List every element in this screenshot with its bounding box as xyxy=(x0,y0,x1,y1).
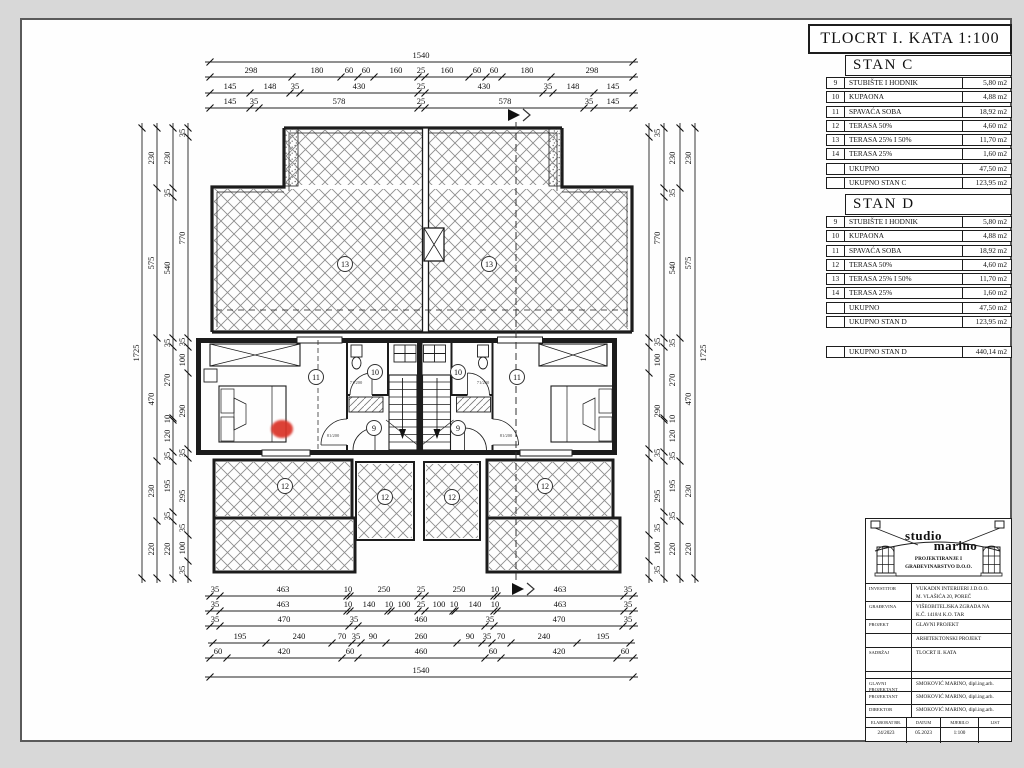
section-marker-icon xyxy=(527,583,534,595)
area-cell: 4,88 m2 xyxy=(963,231,1011,241)
dim-label: 35 xyxy=(624,584,633,594)
title-block-label: INVESTITOR xyxy=(866,584,912,601)
dim-label: 148 xyxy=(264,81,277,91)
dim-label: 25 xyxy=(417,584,426,594)
title-block-row: PROJEKTANTSMOKOVIĆ MARINO, dipl.ing.arh. xyxy=(866,692,1011,705)
stan-d-title: STAN D xyxy=(853,196,915,213)
area-cell: 5,80 m2 xyxy=(963,217,1011,227)
area-cell: KUPAONA xyxy=(845,231,963,241)
dim-label: 1540 xyxy=(413,50,430,60)
dim-label: 35 xyxy=(162,189,172,198)
wall-stipple xyxy=(285,129,298,186)
room-number: 9 xyxy=(372,424,376,433)
dim-label: 10 xyxy=(344,584,353,594)
dim-label: 35 xyxy=(211,614,220,624)
dim-label: 35 xyxy=(624,614,633,624)
sink xyxy=(394,345,416,362)
area-cell: UKUPNO STAN D xyxy=(845,317,963,327)
area-table-row: 13TERASA 25% I 50%11,70 m2 xyxy=(826,134,1012,146)
door-size-label: 71/200 xyxy=(350,380,363,385)
dim-label: 35 xyxy=(352,631,361,641)
dim-label: 35 xyxy=(483,631,492,641)
dim-label: 35 xyxy=(162,339,172,348)
dim-label: 60 xyxy=(473,65,482,75)
title-block-value: SMOKOVIĆ MARINO, dipl.ing.arh. xyxy=(912,705,1011,717)
area-cell: 18,92 m2 xyxy=(963,107,1011,117)
section-marker-icon xyxy=(508,109,520,121)
area-cell: 10 xyxy=(827,231,845,241)
footer-label: DATUM xyxy=(907,718,940,728)
title-block-footer-cell: MJERILO1:100 xyxy=(941,718,979,743)
dim-label: 240 xyxy=(538,631,551,641)
area-cell: TERASA 25% I 50% xyxy=(845,274,963,284)
area-cell xyxy=(827,164,845,174)
dim-label: 195 xyxy=(234,631,247,641)
dim-label: 100 xyxy=(177,354,187,367)
title-block-value xyxy=(912,672,1011,678)
dim-label: 35 xyxy=(652,449,662,458)
dim-label: 145 xyxy=(224,96,237,106)
dim-label: 35 xyxy=(652,129,662,138)
footer-value xyxy=(979,728,1011,730)
area-cell xyxy=(827,317,845,327)
title-block-value: SMOKOVIĆ MARINO, dipl.ing.arh. xyxy=(912,692,1011,704)
dim-label: 430 xyxy=(353,81,366,91)
room-number: 12 xyxy=(541,482,549,491)
dim-label: 100 xyxy=(652,354,662,367)
area-table-row: 12TERASA 50%4,60 m2 xyxy=(826,120,1012,132)
dim-label: 230 xyxy=(146,152,156,165)
drawing-title-text: TLOCRT I. KATA 1:100 xyxy=(820,30,999,48)
staircase-right xyxy=(420,375,454,450)
area-cell xyxy=(827,178,845,188)
staircase-left xyxy=(386,375,420,450)
toilet xyxy=(351,345,362,357)
room-number: 9 xyxy=(456,424,460,433)
area-table-row: UKUPNO STAN C123,95 m2 xyxy=(826,177,1012,189)
upper-terrace xyxy=(212,128,632,332)
title-block-label xyxy=(866,634,912,647)
area-cell: 4,88 m2 xyxy=(963,92,1011,102)
area-table-row: 14TERASA 25%1,60 m2 xyxy=(826,148,1012,160)
door-size-label: 71/200 xyxy=(477,380,490,385)
dim-label: 60 xyxy=(346,646,355,656)
dim-label: 90 xyxy=(466,631,475,641)
dim-label: 35 xyxy=(162,512,172,521)
dim-label: 60 xyxy=(362,65,371,75)
red-position-marker xyxy=(271,420,293,438)
sink xyxy=(424,345,446,362)
dim-label: 60 xyxy=(621,646,630,656)
door-size-label: 81/200 xyxy=(500,433,513,438)
title-block-label: SADRŽAJ xyxy=(866,648,912,671)
dim-label: 60 xyxy=(345,65,354,75)
area-table-row: UKUPNO47,50 m2 xyxy=(826,163,1012,175)
dim-label: 25 xyxy=(417,96,426,106)
dim-label: 290 xyxy=(652,405,662,418)
dim-label: 260 xyxy=(415,631,428,641)
toilet xyxy=(478,345,489,357)
dim-label: 230 xyxy=(683,152,693,165)
dim-label: 35 xyxy=(177,338,187,347)
toilet xyxy=(352,357,361,369)
dim-label: 463 xyxy=(277,584,290,594)
dim-label: 195 xyxy=(162,480,172,493)
building-total-table: UKUPNO STAN D440,14 m2 xyxy=(826,346,1012,360)
dim-label: 470 xyxy=(683,393,693,406)
dim-label: 230 xyxy=(162,152,172,165)
area-cell: 13 xyxy=(827,135,845,145)
footer-label: ELABORAT BR. xyxy=(866,718,906,728)
area-cell: TERASA 25% xyxy=(845,288,963,298)
dim-label: 10 xyxy=(491,584,500,594)
dim-label: 270 xyxy=(667,374,677,387)
dim-label: 35 xyxy=(667,452,677,461)
title-block-label: GLAVNI PROJEKTANT xyxy=(866,679,912,691)
apartment-strip xyxy=(196,337,617,456)
area-cell: 14 xyxy=(827,149,845,159)
dim-label: 250 xyxy=(453,584,466,594)
area-cell: 9 xyxy=(827,217,845,227)
dim-label: 35 xyxy=(211,584,220,594)
area-cell: 5,80 m2 xyxy=(963,78,1011,88)
dim-label: 35 xyxy=(585,96,594,106)
dim-label: 470 xyxy=(278,614,291,624)
area-table-row: UKUPNO STAN D123,95 m2 xyxy=(826,316,1012,328)
area-cell: 18,92 m2 xyxy=(963,246,1011,256)
dim-label: 220 xyxy=(683,543,693,556)
title-block-value: TLOCRT II. KATA xyxy=(912,648,1011,671)
dim-label: 35 xyxy=(486,614,495,624)
title-block-row: SADRŽAJTLOCRT II. KATA xyxy=(866,648,1011,672)
room-number: 13 xyxy=(341,260,349,269)
dim-label: 230 xyxy=(683,485,693,498)
dim-label: 1725 xyxy=(698,345,708,362)
logo-subtitle: PROJEKTIRANJE I GRAĐEVINARSTVO D.O.O. xyxy=(866,556,1011,572)
area-cell xyxy=(827,303,845,313)
page: 1540298180606016025160606018029814514835… xyxy=(0,0,1024,768)
section-marker-icon xyxy=(523,109,530,121)
area-cell: 9 xyxy=(827,78,845,88)
area-cell: TERASA 25% xyxy=(845,149,963,159)
nightstand xyxy=(204,369,217,382)
lower-terraces xyxy=(214,460,620,572)
area-cell: 11 xyxy=(827,107,845,117)
area-cell: 123,95 m2 xyxy=(963,317,1011,327)
stan-c-title: STAN C xyxy=(853,57,914,74)
dim-label: 770 xyxy=(177,232,187,245)
dim-label: 35 xyxy=(250,96,259,106)
dim-label: 35 xyxy=(162,452,172,461)
section-marker-icon xyxy=(512,583,524,595)
dim-label: 35 xyxy=(544,81,553,91)
stan-c-area-table: 9STUBIŠTE I HODNIK5,80 m210KUPAONA4,88 m… xyxy=(826,77,1012,191)
dim-label: 60 xyxy=(489,646,498,656)
room-number: 11 xyxy=(312,373,320,382)
area-cell: 11,70 m2 xyxy=(963,135,1011,145)
area-cell: 1,60 m2 xyxy=(963,149,1011,159)
dim-label: 460 xyxy=(415,646,428,656)
title-block-row: PROJEKTGLAVNI PROJEKT xyxy=(866,620,1011,634)
dim-label: 100 xyxy=(433,599,446,609)
dim-label: 145 xyxy=(607,96,620,106)
dim-label: 298 xyxy=(245,65,258,75)
dim-label: 35 xyxy=(667,339,677,348)
title-block-value: VUKADIN INTERIJERI J.D.O.O.M. VLAŠIĆA 20… xyxy=(912,584,1011,601)
bedroom-door xyxy=(321,419,347,445)
dim-label: 10 xyxy=(667,415,677,424)
dim-label: 180 xyxy=(521,65,534,75)
area-cell: UKUPNO STAN C xyxy=(845,178,963,188)
area-cell: TERASA 50% xyxy=(845,260,963,270)
area-table-row: 9STUBIŠTE I HODNIK5,80 m2 xyxy=(826,77,1012,89)
dim-label: 420 xyxy=(553,646,566,656)
dim-label: 25 xyxy=(417,599,426,609)
door-size-label: 81/200 xyxy=(327,433,340,438)
dim-label: 148 xyxy=(567,81,580,91)
pillow xyxy=(599,417,612,441)
title-block-row: ARHITEKTONSKI PROJEKT xyxy=(866,634,1011,648)
dim-label: 195 xyxy=(597,631,610,641)
dim-label: 420 xyxy=(278,646,291,656)
area-table-row: UKUPNO STAN D440,14 m2 xyxy=(826,346,1012,358)
title-block-row xyxy=(866,672,1011,679)
pillow xyxy=(221,389,234,413)
dim-label: 35 xyxy=(177,524,187,533)
dim-label: 25 xyxy=(417,81,426,91)
dim-label: 35 xyxy=(177,566,187,575)
dim-label: 10 xyxy=(162,415,172,424)
dim-label: 540 xyxy=(667,262,677,275)
dim-label: 195 xyxy=(667,480,677,493)
dim-label: 250 xyxy=(378,584,391,594)
dim-label: 100 xyxy=(398,599,411,609)
area-cell: 440,14 m2 xyxy=(963,347,1011,357)
area-cell: 4,60 m2 xyxy=(963,260,1011,270)
room-number: 12 xyxy=(381,493,389,502)
dim-label: 140 xyxy=(469,599,482,609)
dim-label: 160 xyxy=(441,65,454,75)
area-cell: 11,70 m2 xyxy=(963,274,1011,284)
dim-label: 60 xyxy=(214,646,223,656)
area-table-row: UKUPNO47,50 m2 xyxy=(826,302,1012,314)
title-block-row: GLAVNI PROJEKTANTSMOKOVIĆ MARINO, dipl.i… xyxy=(866,679,1011,692)
bedroom-door xyxy=(493,419,519,445)
closet xyxy=(457,397,491,412)
dim-label: 220 xyxy=(667,543,677,556)
dim-label: 35 xyxy=(652,566,662,575)
dim-label: 35 xyxy=(667,512,677,521)
area-cell: 123,95 m2 xyxy=(963,178,1011,188)
dim-label: 160 xyxy=(390,65,403,75)
area-cell: SPAVAĆA SOBA xyxy=(845,107,963,117)
dim-label: 145 xyxy=(224,81,237,91)
area-table-row: 14TERASA 25%1,60 m2 xyxy=(826,287,1012,299)
dim-label: 220 xyxy=(162,543,172,556)
stan-d-area-table: 9STUBIŠTE I HODNIK5,80 m210KUPAONA4,88 m… xyxy=(826,216,1012,330)
dim-label: 540 xyxy=(162,262,172,275)
area-table-row: 11SPAVAĆA SOBA18,92 m2 xyxy=(826,245,1012,257)
dim-label: 470 xyxy=(146,393,156,406)
dim-label: 35 xyxy=(291,81,300,91)
dim-label: 90 xyxy=(369,631,378,641)
dim-label: 463 xyxy=(277,599,290,609)
area-cell: UKUPNO xyxy=(845,303,963,313)
wall-stipple xyxy=(549,129,562,186)
title-block-value: SMOKOVIĆ MARINO, dipl.ing.arh. xyxy=(912,679,1011,691)
dim-label: 463 xyxy=(554,584,567,594)
dim-label: 120 xyxy=(162,430,172,443)
hall-door xyxy=(465,428,487,450)
party-wall xyxy=(417,338,423,455)
area-cell: UKUPNO STAN D xyxy=(845,347,963,357)
area-table-row: 12TERASA 50%4,60 m2 xyxy=(826,259,1012,271)
title-block-label: DIREKTOR xyxy=(866,705,912,717)
dim-label: 35 xyxy=(652,338,662,347)
area-cell: TERASA 25% I 50% xyxy=(845,135,963,145)
dim-label: 470 xyxy=(553,614,566,624)
dim-label: 240 xyxy=(293,631,306,641)
title-block-rows: INVESTITORVUKADIN INTERIJERI J.D.O.O.M. … xyxy=(866,584,1011,718)
dim-label: 100 xyxy=(652,542,662,555)
logo-pillar xyxy=(871,521,880,528)
title-block-footer: ELABORAT BR.24/2023DATUM05.2023MJERILO1:… xyxy=(866,718,1011,743)
dim-label: 290 xyxy=(177,405,187,418)
dim-label: 295 xyxy=(652,490,662,503)
area-table-row: 10KUPAONA4,88 m2 xyxy=(826,230,1012,242)
pillow xyxy=(599,389,612,413)
logo-text-marino: marino xyxy=(900,538,1011,554)
closet xyxy=(349,397,383,412)
room-number: 12 xyxy=(448,493,456,502)
area-cell: 12 xyxy=(827,260,845,270)
dim-label: 25 xyxy=(417,65,426,75)
area-cell: KUPAONA xyxy=(845,92,963,102)
area-cell: SPAVAĆA SOBA xyxy=(845,246,963,256)
title-block-label xyxy=(866,672,912,678)
dim-label: 460 xyxy=(415,614,428,624)
dim-label: 35 xyxy=(667,189,677,198)
dim-label: 140 xyxy=(363,599,376,609)
dim-label: 1540 xyxy=(413,665,430,675)
footer-label: LIST xyxy=(979,718,1011,728)
area-cell: 47,50 m2 xyxy=(963,303,1011,313)
dim-label: 575 xyxy=(146,257,156,270)
title-block-value: VIŠEOBITELJSKA ZGRADA NAK.Č. 1418/4 K.O.… xyxy=(912,602,1011,619)
dim-label: 463 xyxy=(554,599,567,609)
logo-pillar xyxy=(995,521,1004,528)
title-block-label: GRAĐEVINA xyxy=(866,602,912,619)
title-block-label: PROJEKTANT xyxy=(866,692,912,704)
dim-label: 220 xyxy=(146,543,156,556)
dim-label: 60 xyxy=(490,65,499,75)
dim-label: 35 xyxy=(177,129,187,138)
dim-label: 35 xyxy=(211,599,220,609)
dim-label: 35 xyxy=(177,449,187,458)
dim-label: 10 xyxy=(450,599,459,609)
dim-label: 770 xyxy=(652,232,662,245)
title-block-label: PROJEKT xyxy=(866,620,912,633)
area-cell xyxy=(827,347,845,357)
dim-label: 35 xyxy=(652,524,662,533)
dim-label: 10 xyxy=(385,599,394,609)
title-block-value: GLAVNI PROJEKT xyxy=(912,620,1011,633)
title-block-footer-cell: DATUM05.2023 xyxy=(907,718,941,743)
title-block-row: DIREKTORSMOKOVIĆ MARINO, dipl.ing.arh. xyxy=(866,705,1011,718)
area-cell: UKUPNO xyxy=(845,164,963,174)
area-cell: 13 xyxy=(827,274,845,284)
footer-value: 24/2023 xyxy=(866,728,906,736)
room-number: 12 xyxy=(281,482,289,491)
dim-label: 295 xyxy=(177,490,187,503)
dim-label: 578 xyxy=(499,96,512,106)
footer-value: 1:100 xyxy=(941,728,978,736)
area-cell: 10 xyxy=(827,92,845,102)
area-table-row: 11SPAVAĆA SOBA18,92 m2 xyxy=(826,106,1012,118)
footer-value: 05.2023 xyxy=(907,728,940,736)
area-cell: 4,60 m2 xyxy=(963,121,1011,131)
room-number: 10 xyxy=(454,368,462,377)
dim-label: 10 xyxy=(491,599,500,609)
area-cell: 47,50 m2 xyxy=(963,164,1011,174)
area-table-row: 9STUBIŠTE I HODNIK5,80 m2 xyxy=(826,216,1012,228)
area-cell: 11 xyxy=(827,246,845,256)
terrace-hatch xyxy=(214,189,628,330)
area-cell: TERASA 50% xyxy=(845,121,963,131)
stan-d-header: STAN D xyxy=(845,194,1012,215)
dim-label: 578 xyxy=(333,96,346,106)
dim-label: 298 xyxy=(586,65,599,75)
title-block: studio marino PROJEKTIRANJE I GRAĐEVINAR… xyxy=(865,518,1012,742)
dim-label: 70 xyxy=(338,631,347,641)
room-number: 13 xyxy=(485,260,493,269)
footer-label: MJERILO xyxy=(941,718,978,728)
room-number: 10 xyxy=(371,368,379,377)
area-cell: STUBIŠTE I HODNIK xyxy=(845,217,963,227)
title-block-row: INVESTITORVUKADIN INTERIJERI J.D.O.O.M. … xyxy=(866,584,1011,602)
bedroom-furniture-right xyxy=(539,344,615,442)
dim-label: 35 xyxy=(624,599,633,609)
studio-logo: studio marino PROJEKTIRANJE I GRAĐEVINAR… xyxy=(866,519,1011,584)
dim-label: 120 xyxy=(667,430,677,443)
dim-label: 70 xyxy=(497,631,506,641)
dim-label: 145 xyxy=(607,81,620,91)
dim-label: 35 xyxy=(350,614,359,624)
title-block-footer-cell: ELABORAT BR.24/2023 xyxy=(866,718,907,743)
dim-label: 180 xyxy=(311,65,324,75)
toilet xyxy=(479,357,488,369)
dim-label: 100 xyxy=(177,542,187,555)
area-table-row: 10KUPAONA4,88 m2 xyxy=(826,91,1012,103)
dim-label: 430 xyxy=(478,81,491,91)
room-number: 11 xyxy=(513,373,521,382)
area-cell: 1,60 m2 xyxy=(963,288,1011,298)
stan-c-header: STAN C xyxy=(845,55,1012,76)
dim-label: 1725 xyxy=(131,345,141,362)
area-cell: 14 xyxy=(827,288,845,298)
area-cell: 12 xyxy=(827,121,845,131)
area-cell: STUBIŠTE I HODNIK xyxy=(845,78,963,88)
title-block-row: GRAĐEVINAVIŠEOBITELJSKA ZGRADA NAK.Č. 14… xyxy=(866,602,1011,620)
dim-label: 575 xyxy=(683,257,693,270)
title-block-footer-cell: LIST xyxy=(979,718,1011,743)
title-block-value: ARHITEKTONSKI PROJEKT xyxy=(912,634,1011,647)
dim-label: 270 xyxy=(162,374,172,387)
dim-label: 230 xyxy=(667,152,677,165)
area-table-row: 13TERASA 25% I 50%11,70 m2 xyxy=(826,273,1012,285)
drawing-title: TLOCRT I. KATA 1:100 xyxy=(808,24,1012,54)
dim-label: 230 xyxy=(146,485,156,498)
